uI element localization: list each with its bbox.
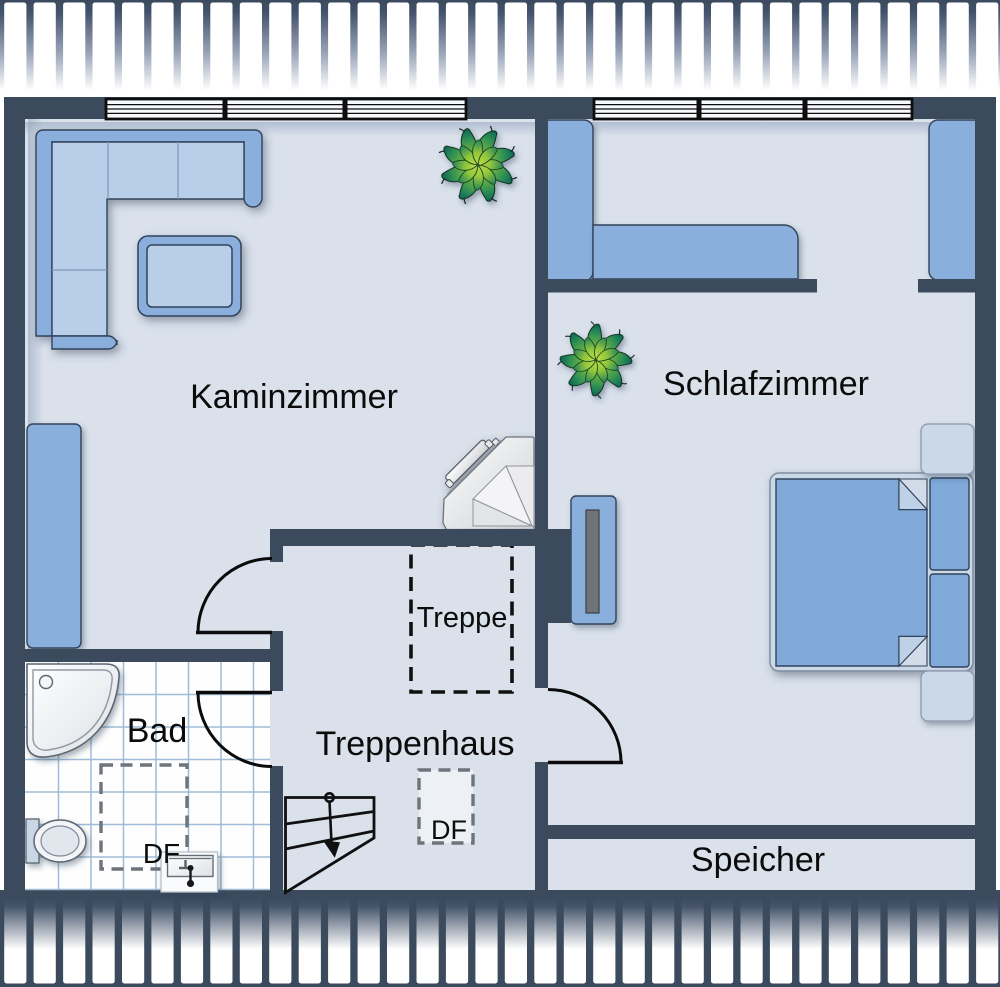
svg-text:Schlafzimmer: Schlafzimmer xyxy=(663,365,869,403)
svg-text:Bad: Bad xyxy=(127,712,188,750)
svg-text:Speicher: Speicher xyxy=(691,841,825,879)
svg-text:Treppenhaus: Treppenhaus xyxy=(315,725,514,763)
svg-text:DF: DF xyxy=(143,838,180,869)
svg-text:DF: DF xyxy=(431,815,467,845)
svg-text:Kaminzimmer: Kaminzimmer xyxy=(190,378,398,416)
svg-text:Treppe: Treppe xyxy=(417,602,508,634)
